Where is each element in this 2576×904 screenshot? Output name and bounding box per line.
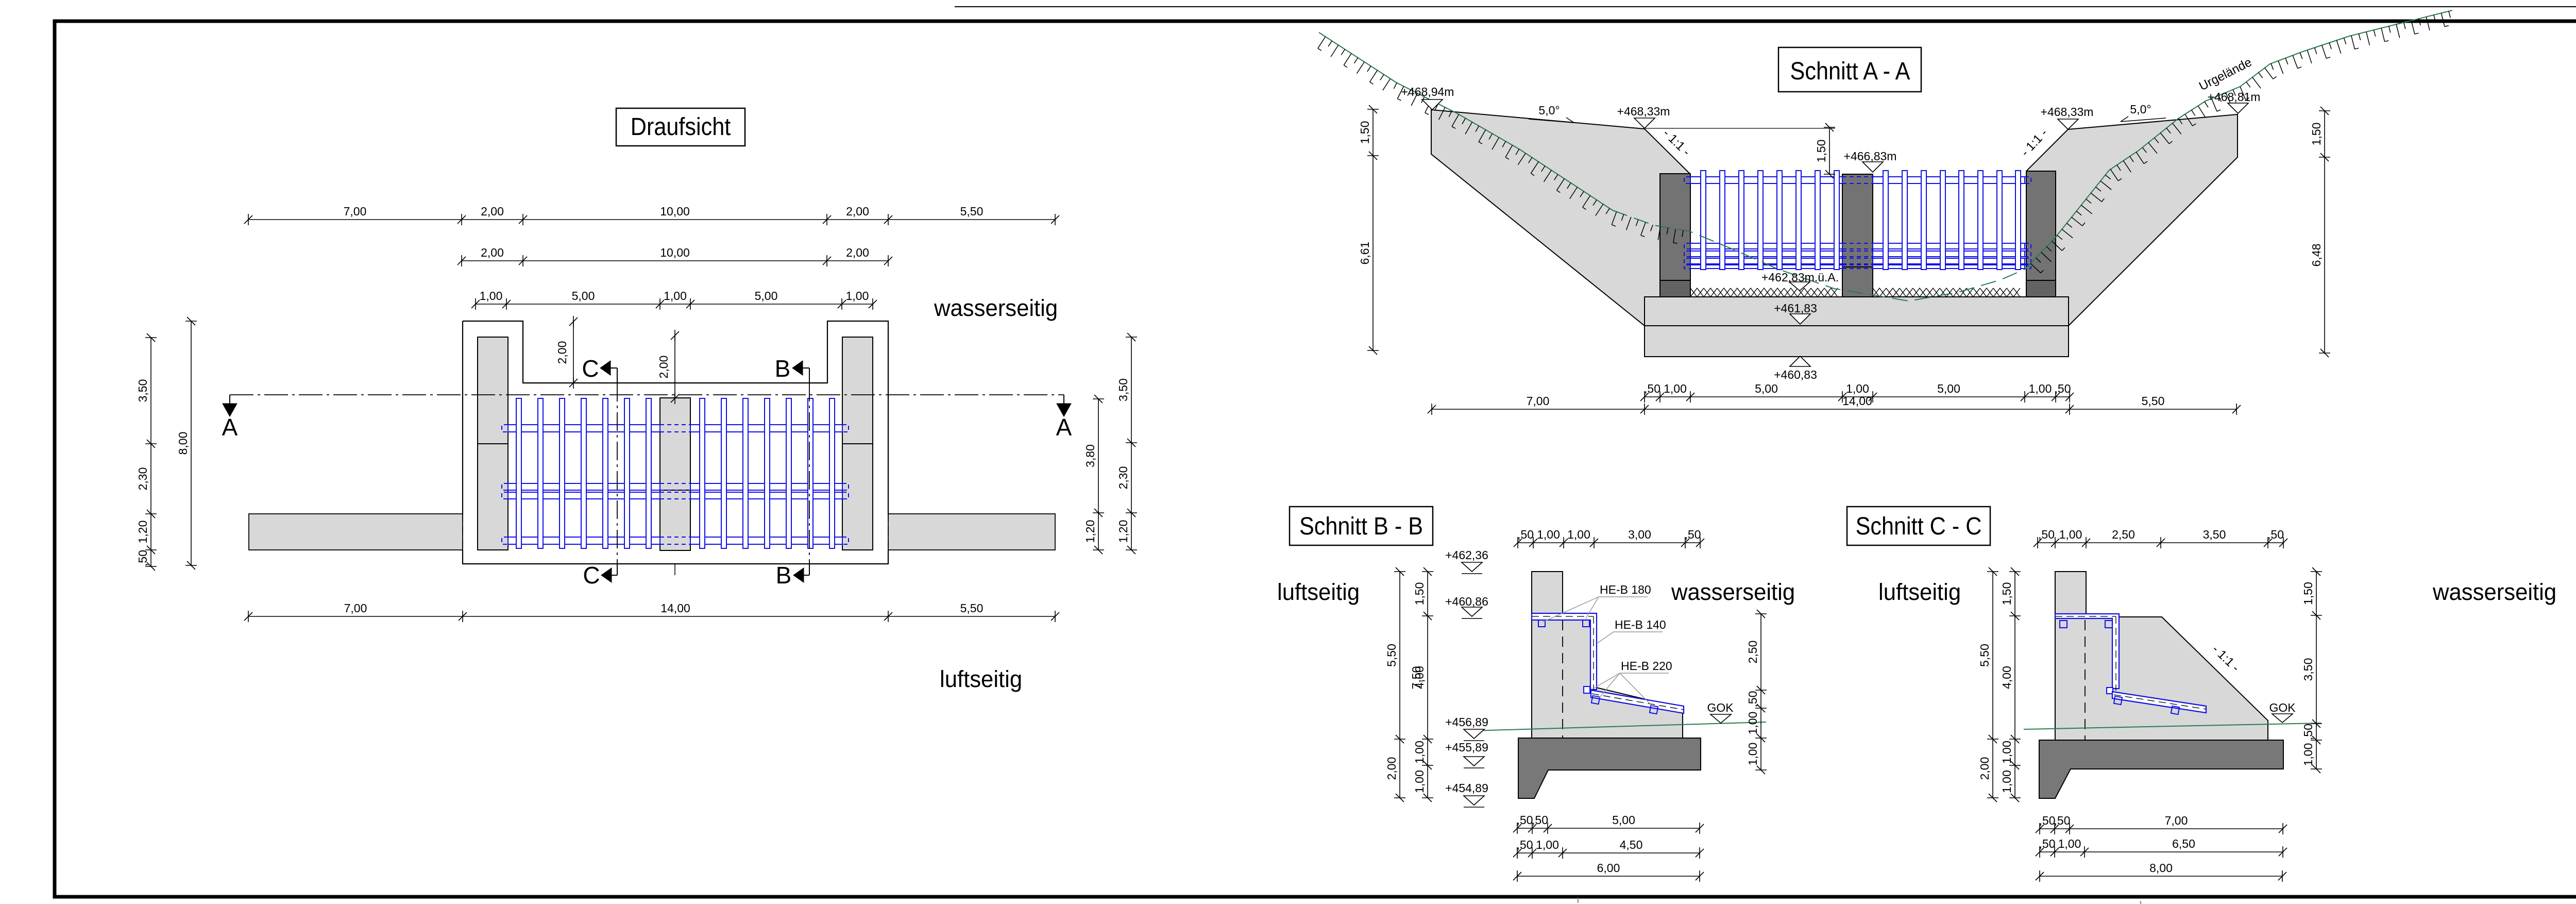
svg-text:14,00: 14,00 — [1842, 394, 1872, 408]
svg-text:,50: ,50 — [1517, 813, 1533, 827]
svg-text:2,00: 2,00 — [1978, 757, 1991, 780]
svg-text:4,50: 4,50 — [1620, 838, 1643, 851]
svg-text:+468,94m: +468,94m — [1401, 85, 1454, 98]
svg-text:5,00: 5,00 — [1755, 382, 1778, 395]
svg-text:7,00: 7,00 — [344, 205, 367, 218]
svg-text:1,00: 1,00 — [1746, 712, 1759, 735]
svg-text:,50: ,50 — [2039, 814, 2056, 827]
svg-text:14,00: 14,00 — [660, 601, 690, 615]
svg-text:C: C — [583, 562, 600, 589]
svg-text:2,50: 2,50 — [1746, 641, 1759, 664]
svg-text:1,50: 1,50 — [2310, 123, 2323, 146]
svg-text:luftseitig: luftseitig — [1878, 579, 1961, 605]
svg-text:,50: ,50 — [1644, 382, 1660, 395]
svg-text:,50: ,50 — [1517, 838, 1533, 851]
svg-text:1,00: 1,00 — [2058, 837, 2081, 850]
svg-text:C: C — [582, 355, 599, 382]
svg-text:+466,83m: +466,83m — [1844, 149, 1897, 163]
svg-text:3,50: 3,50 — [1116, 378, 1130, 401]
svg-text:HE-B 180: HE-B 180 — [1600, 583, 1651, 596]
svg-text:8,00: 8,00 — [176, 432, 190, 455]
svg-text:1,00: 1,00 — [1664, 382, 1687, 395]
svg-text:+468,33m: +468,33m — [2041, 105, 2094, 119]
svg-text:3,00: 3,00 — [1628, 528, 1651, 541]
svg-text:5,00: 5,00 — [1937, 382, 1960, 395]
svg-text:HE-B 220: HE-B 220 — [1621, 659, 1672, 673]
svg-text:1,00: 1,00 — [1746, 743, 1759, 766]
svg-text:Schnitt A - A: Schnitt A - A — [1790, 57, 1910, 85]
svg-text:,50: ,50 — [1746, 691, 1759, 708]
svg-text:1,50: 1,50 — [2000, 582, 2013, 606]
svg-text:3,80: 3,80 — [1083, 444, 1097, 467]
svg-text:HE-B 140: HE-B 140 — [1615, 618, 1666, 631]
svg-text:wasserseitig: wasserseitig — [1671, 579, 1795, 605]
svg-text:+462,36: +462,36 — [1445, 548, 1488, 562]
svg-text:Draufsicht: Draufsicht — [631, 113, 731, 141]
svg-text:6,50: 6,50 — [2172, 837, 2195, 850]
svg-text:,50: ,50 — [1685, 528, 1701, 541]
svg-text:1,00: 1,00 — [1536, 838, 1559, 851]
svg-text:5,50: 5,50 — [1385, 644, 1398, 667]
svg-text:1,20: 1,20 — [136, 521, 149, 544]
svg-text:10,00: 10,00 — [660, 246, 690, 259]
svg-text:,50: ,50 — [1532, 813, 1548, 827]
svg-text:1,00: 1,00 — [1567, 528, 1590, 541]
svg-text:1,00: 1,00 — [846, 289, 869, 303]
svg-text:1,50: 1,50 — [1358, 121, 1371, 144]
svg-text:5,00: 5,00 — [755, 289, 778, 303]
svg-text:luftseitig: luftseitig — [1277, 579, 1360, 605]
svg-text:+454,89: +454,89 — [1445, 781, 1488, 795]
svg-text:5,00: 5,00 — [1612, 813, 1635, 827]
svg-text:1,20: 1,20 — [1116, 520, 1130, 543]
svg-text:2,30: 2,30 — [136, 467, 149, 491]
svg-text:2,00: 2,00 — [846, 205, 869, 218]
svg-text:3,50: 3,50 — [2203, 528, 2226, 541]
svg-text:2,00: 2,00 — [846, 246, 869, 259]
svg-text:1,00: 1,00 — [1413, 741, 1426, 764]
svg-text:,50: ,50 — [136, 550, 149, 566]
svg-text:+468,33m: +468,33m — [1617, 105, 1670, 118]
svg-text:,50: ,50 — [2055, 382, 2071, 395]
svg-text:GOK: GOK — [2269, 701, 2296, 714]
svg-text:2,00: 2,00 — [1385, 757, 1398, 780]
svg-text:3,50: 3,50 — [136, 379, 149, 403]
svg-text:A: A — [1056, 414, 1072, 441]
svg-text:A: A — [222, 414, 238, 441]
svg-text:+460,83: +460,83 — [1774, 368, 1817, 381]
svg-text:B: B — [775, 355, 791, 382]
svg-text:+460,86: +460,86 — [1445, 595, 1488, 608]
svg-text:5,0°: 5,0° — [2130, 103, 2151, 116]
svg-text:1,50: 1,50 — [2301, 582, 2315, 605]
svg-text:7,00: 7,00 — [344, 601, 367, 615]
svg-text:6,61: 6,61 — [1358, 242, 1371, 265]
svg-text:6,00: 6,00 — [1597, 861, 1620, 875]
svg-text:7,00: 7,00 — [2165, 814, 2188, 827]
svg-text:wasserseitig: wasserseitig — [934, 295, 1058, 321]
svg-text:2,00: 2,00 — [481, 246, 504, 259]
svg-text:,50: ,50 — [2039, 837, 2056, 850]
svg-text:luftseitig: luftseitig — [940, 666, 1022, 692]
svg-text:1,00: 1,00 — [1413, 770, 1426, 793]
svg-text:,50: ,50 — [1517, 528, 1534, 541]
svg-text:5,50: 5,50 — [960, 205, 984, 218]
svg-text:5,00: 5,00 — [572, 289, 595, 303]
svg-text:1,00: 1,00 — [664, 289, 687, 303]
svg-text:1,50: 1,50 — [1413, 582, 1426, 606]
svg-text:+455,89: +455,89 — [1445, 741, 1488, 754]
svg-text:wasserseitig: wasserseitig — [2432, 579, 2556, 605]
svg-text:1,00: 1,00 — [2059, 528, 2082, 541]
svg-text:+468,81m: +468,81m — [2208, 90, 2261, 104]
svg-text:1,00: 1,00 — [2029, 382, 2052, 395]
svg-text:7,50: 7,50 — [1410, 666, 1423, 690]
svg-text:1,20: 1,20 — [1083, 520, 1097, 543]
svg-text:8,00: 8,00 — [2149, 861, 2173, 875]
svg-text:,50: ,50 — [2038, 528, 2055, 541]
svg-text:1,50: 1,50 — [1815, 140, 1828, 163]
svg-text:2,00: 2,00 — [555, 341, 569, 364]
svg-text:+461,83: +461,83 — [1774, 302, 1817, 315]
svg-text:2,00: 2,00 — [481, 205, 504, 218]
svg-text:B: B — [776, 562, 792, 589]
svg-text:2,50: 2,50 — [2112, 528, 2135, 541]
svg-text:1,00: 1,00 — [2301, 743, 2315, 766]
svg-text:5,50: 5,50 — [2142, 394, 2165, 408]
svg-text:10,00: 10,00 — [660, 205, 690, 218]
svg-text:1,00: 1,00 — [480, 289, 503, 303]
svg-text:GOK: GOK — [1707, 701, 1734, 714]
svg-text:Schnitt B - B: Schnitt B - B — [1299, 512, 1423, 540]
svg-text:+456,89: +456,89 — [1445, 715, 1488, 729]
svg-text:2,30: 2,30 — [1116, 466, 1130, 490]
svg-text:5,50: 5,50 — [960, 601, 984, 615]
svg-text:,50: ,50 — [2054, 814, 2071, 827]
svg-text:Schnitt C - C: Schnitt C - C — [1856, 512, 1982, 540]
svg-text:5,0°: 5,0° — [1538, 104, 1560, 117]
svg-text:,50: ,50 — [2267, 528, 2284, 541]
svg-text:1,00: 1,00 — [1537, 528, 1560, 541]
svg-text:3,50: 3,50 — [2301, 658, 2315, 681]
svg-text:1,00: 1,00 — [1846, 382, 1869, 395]
svg-text:6,48: 6,48 — [2310, 244, 2323, 267]
svg-text:7,00: 7,00 — [1527, 394, 1550, 408]
svg-text:2,00: 2,00 — [657, 356, 670, 379]
svg-text:5,50: 5,50 — [1978, 644, 1991, 667]
svg-text:,50: ,50 — [2301, 724, 2315, 740]
svg-text:4,00: 4,00 — [2000, 666, 2013, 689]
svg-text:1,00: 1,00 — [2000, 741, 2013, 764]
svg-text:1,00: 1,00 — [2000, 770, 2013, 793]
